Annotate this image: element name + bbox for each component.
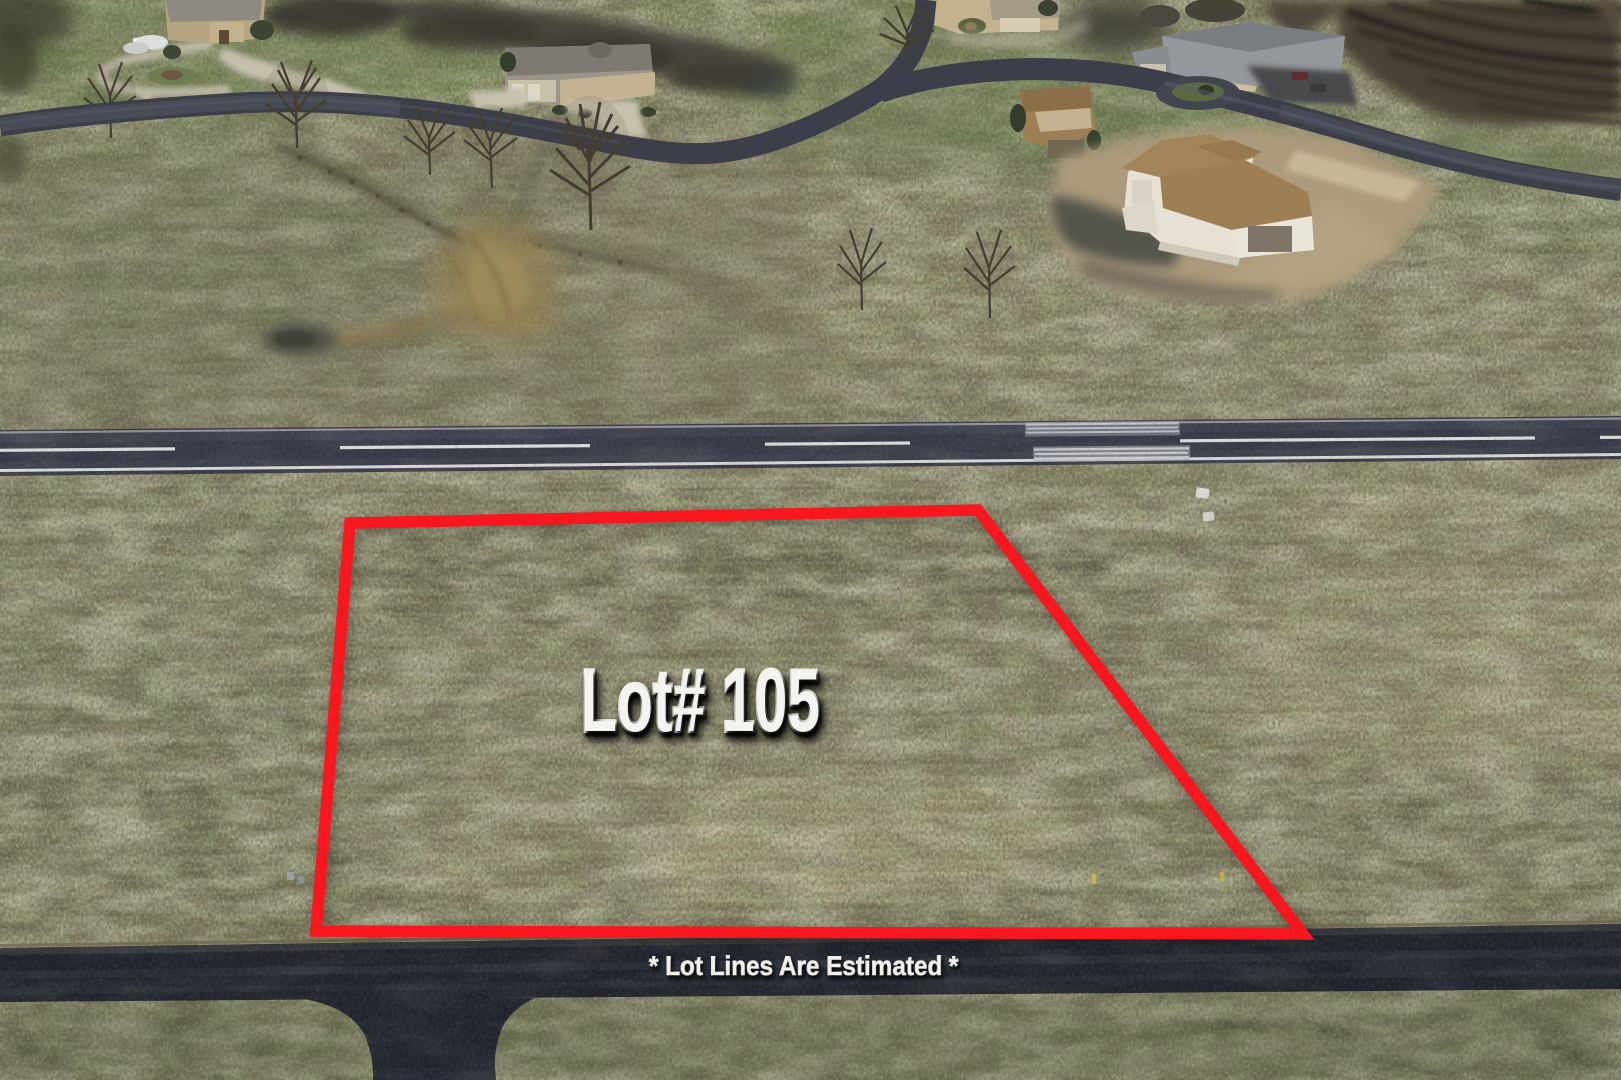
svg-text:Lot# 105: Lot# 105 xyxy=(581,651,820,750)
svg-text:* Lot Lines Are Estimated *: * Lot Lines Are Estimated * xyxy=(649,952,959,981)
